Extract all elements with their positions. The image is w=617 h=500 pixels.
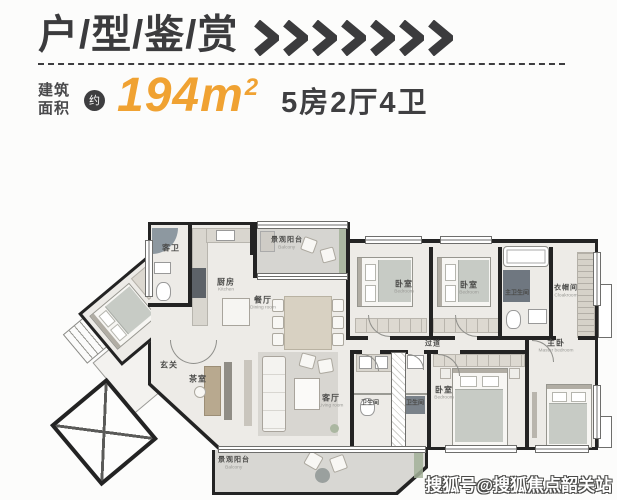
toilet: [506, 310, 521, 329]
bed: [546, 384, 592, 448]
window: [535, 445, 589, 453]
window: [440, 236, 492, 244]
wardrobe: [355, 318, 427, 333]
room-label-bedroom3: 卧室 Bedroom: [432, 386, 456, 401]
room-label-bedroom1: 卧室 Bedroom: [392, 280, 416, 295]
wall: [348, 336, 368, 340]
wall: [427, 350, 431, 450]
room-label-kitchen: 厨房 Kitchen: [216, 278, 236, 293]
tv-cabinet: [244, 360, 252, 426]
room-label-bath-left: 卫生间: [361, 400, 379, 409]
room-label-master-bedroom: 主卧 Master bedroom: [534, 339, 578, 354]
dining-table: [284, 296, 332, 350]
sliding-door: [257, 273, 348, 280]
desk-chair: [194, 386, 206, 398]
wall: [429, 247, 433, 340]
plant: [330, 424, 339, 433]
window: [365, 236, 422, 244]
bed: [452, 368, 508, 446]
kitchen-sink: [216, 230, 235, 241]
tea-desk: [204, 366, 221, 416]
duct-shaft: [391, 352, 406, 450]
room-label-corridor: 过道: [425, 340, 441, 349]
plants: [339, 229, 346, 274]
dining-chair: [272, 333, 284, 346]
sofa: [262, 356, 286, 432]
sliding-door: [218, 446, 426, 453]
wall: [148, 303, 192, 307]
wall: [498, 247, 502, 336]
wall: [578, 336, 598, 340]
dining-chair: [272, 316, 284, 329]
room-label-guest-bath: 客卫: [162, 244, 180, 253]
window: [593, 252, 601, 306]
toilet: [156, 282, 171, 301]
tv-cabinet: [532, 392, 537, 438]
wall: [390, 336, 455, 340]
dining-chair: [332, 316, 344, 329]
sink: [154, 262, 171, 274]
dining-chair: [332, 299, 344, 312]
armchair: [317, 358, 334, 374]
plants: [414, 452, 423, 478]
room-label-bath-right: 卫生间: [406, 400, 424, 409]
floorplan: 客房 Guest room: [0, 0, 617, 500]
room-label-master-bath: 主卫生间: [505, 290, 529, 299]
wall: [525, 336, 529, 450]
wall: [350, 350, 354, 450]
window: [257, 221, 348, 229]
nightstand: [509, 368, 520, 379]
round-table: [315, 468, 330, 483]
room-label-bedroom2: 卧室 Bedroom: [457, 281, 481, 296]
room-label-cloakroom: 衣帽间 Cloakroom: [551, 284, 580, 299]
room-label-dining: 餐厅 Dining room: [247, 296, 279, 311]
room-label-tea-room: 茶室: [189, 375, 207, 384]
kitchen-island: [222, 298, 250, 326]
dining-chair: [332, 333, 344, 346]
window: [593, 385, 601, 439]
window: [445, 445, 517, 453]
bathtub: [503, 246, 549, 267]
sink: [528, 309, 547, 324]
room-label-living: 客厅 Living room: [315, 394, 346, 409]
bookshelf: [224, 362, 232, 420]
window: [145, 240, 153, 297]
room-label-balcony-top: 景观阳台 Balcony: [271, 236, 303, 251]
room-label-balcony-bottom: 景观阳台 Balcony: [218, 456, 250, 471]
stove: [192, 268, 206, 298]
wall: [188, 225, 192, 305]
wall: [460, 350, 528, 354]
watermark: 搜狐号@搜狐焦点韶关站: [425, 471, 612, 496]
wall: [253, 225, 257, 278]
room-label-foyer: 玄关: [160, 361, 178, 370]
